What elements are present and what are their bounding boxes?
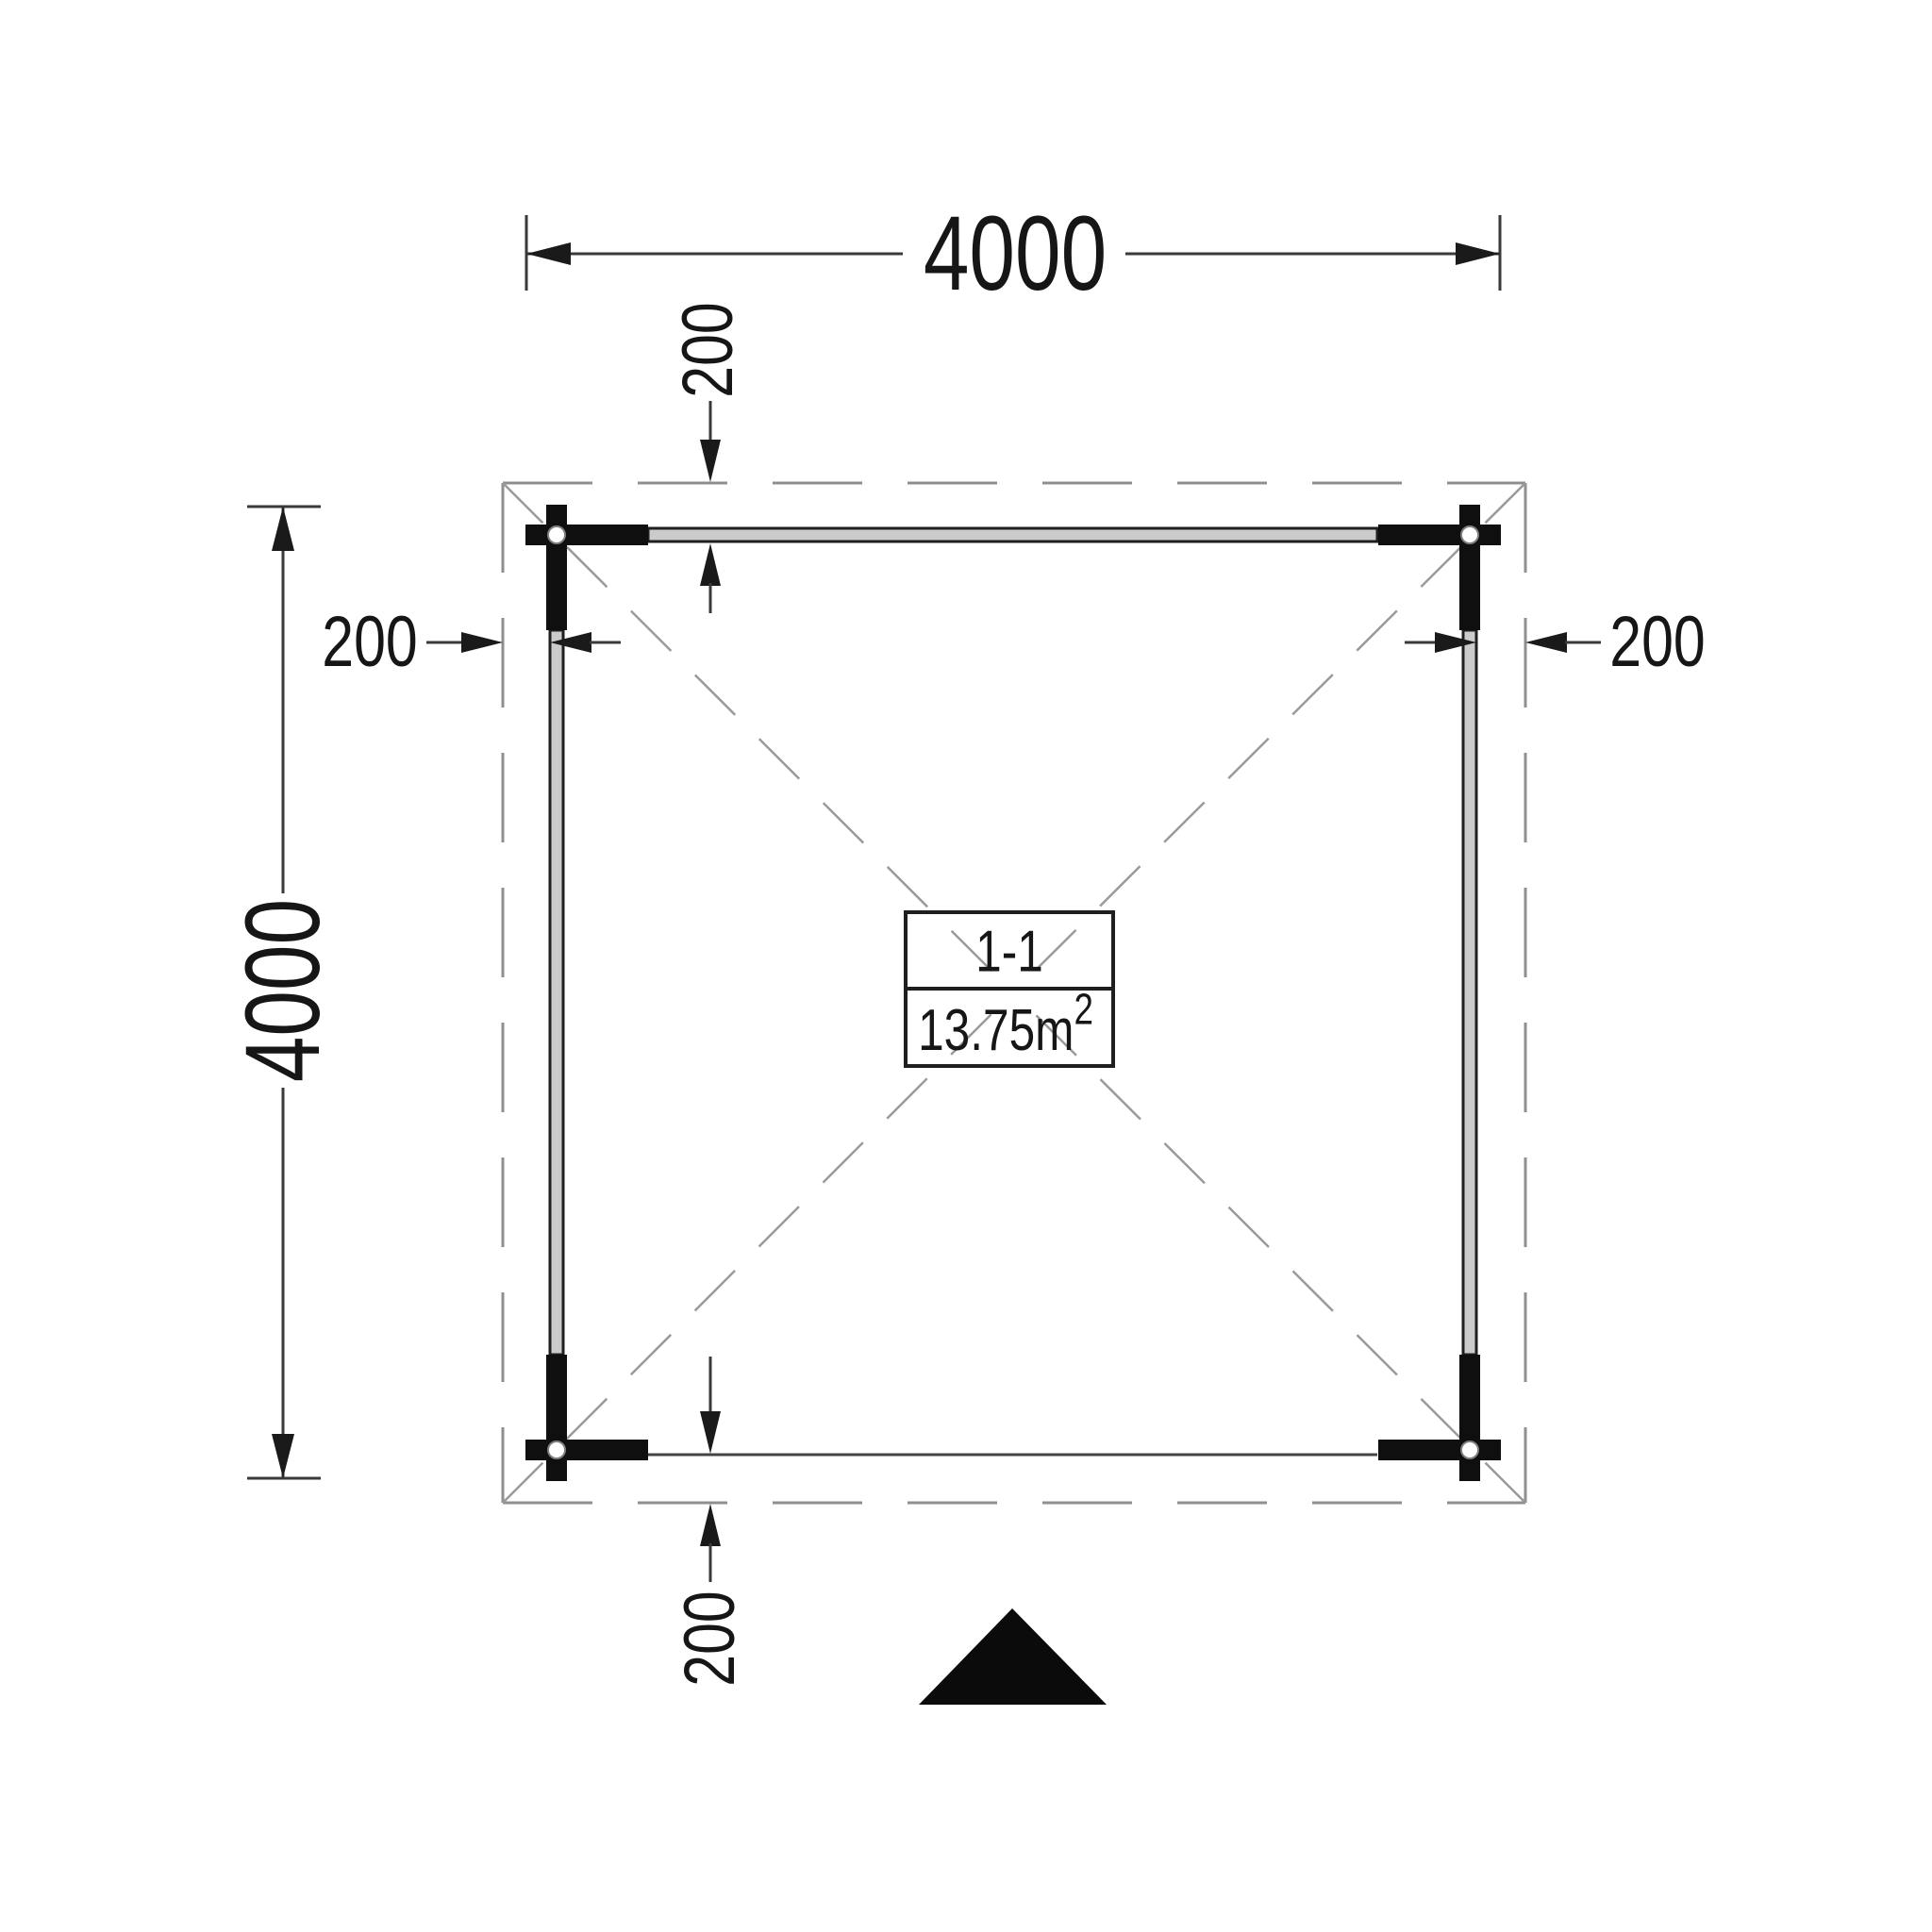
dimension-text-overhang-bottom: 200 xyxy=(669,1591,749,1686)
area-superscript: 2 xyxy=(1074,984,1092,1033)
arrowhead-right-icon xyxy=(1456,242,1500,265)
floor-plan-canvas: 4000 4000 200 200 200 xyxy=(0,0,1932,1932)
arrowhead-right-icon xyxy=(461,632,503,653)
post-center-circle xyxy=(548,526,565,543)
arrowhead-up-icon xyxy=(700,543,721,586)
area-value: 13.75m xyxy=(918,996,1074,1062)
arrowhead-down-icon xyxy=(700,1411,721,1454)
post-center-circle xyxy=(1461,1441,1478,1458)
log-end-vertical xyxy=(546,1355,567,1481)
log-end-vertical xyxy=(546,505,567,630)
log-end-vertical xyxy=(1459,505,1480,630)
arrowhead-down-icon xyxy=(700,440,721,482)
wall-right xyxy=(1463,630,1476,1355)
wall-left xyxy=(550,630,563,1355)
hip-ridge-bottom-right xyxy=(1013,992,1525,1503)
post-center-circle xyxy=(548,1441,565,1458)
dimension-width-top: 4000 xyxy=(526,195,1500,313)
dimension-text-overhang-top: 200 xyxy=(667,302,747,397)
arrowhead-up-icon xyxy=(272,507,294,551)
section-number-text: 1-1 xyxy=(975,918,1043,984)
log-end-vertical xyxy=(1459,1355,1480,1481)
hip-ridge-bottom-left xyxy=(503,992,1013,1503)
arrowhead-left-icon xyxy=(526,242,571,265)
north-marker-triangle-icon xyxy=(919,1608,1107,1705)
dimension-overhang-bottom: 200 xyxy=(669,1357,749,1687)
arrowhead-down-icon xyxy=(272,1434,294,1478)
log-end-horizontal xyxy=(525,1440,648,1460)
area-text: 13.75m2 xyxy=(918,984,1093,1062)
arrowhead-left-icon xyxy=(1525,632,1567,653)
floor-plan-drawing: 4000 4000 200 200 200 xyxy=(0,0,1932,1932)
log-end-horizontal xyxy=(525,525,648,545)
dimension-text-width-top: 4000 xyxy=(924,195,1107,313)
dimension-text-overhang-right: 200 xyxy=(1609,601,1705,681)
dimension-text-height-left: 4000 xyxy=(225,899,342,1082)
dimension-text-overhang-left: 200 xyxy=(322,601,417,681)
wall-top xyxy=(648,528,1377,541)
log-end-horizontal xyxy=(1378,1440,1501,1460)
dimension-overhang-left: 200 xyxy=(322,601,621,681)
log-end-horizontal xyxy=(1378,525,1501,545)
dimension-overhang-top: 200 xyxy=(667,302,747,613)
arrowhead-up-icon xyxy=(700,1504,721,1546)
dimension-overhang-right: 200 xyxy=(1405,601,1706,681)
post-center-circle xyxy=(1461,526,1478,543)
